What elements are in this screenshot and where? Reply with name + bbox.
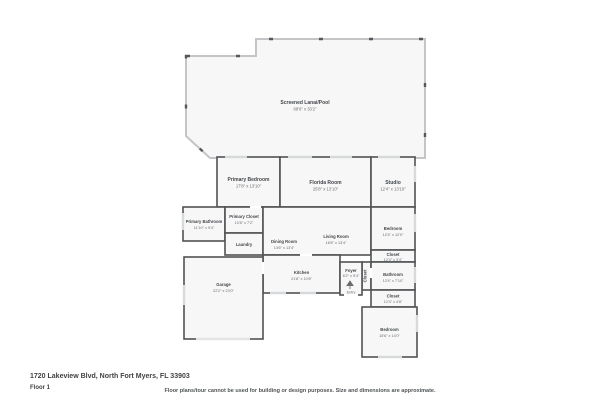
room-closet-b: Closet 12'4" x 4'8"	[371, 290, 415, 307]
room-label: Primary Bathroom	[186, 219, 223, 224]
floor-plan-svg: Screened Lanai/Pool 68'6" x 33'2" Primar…	[0, 0, 600, 400]
room-florida-room: Florida Room 25'8" x 13'10"	[280, 157, 371, 207]
room-label: Primary Bedroom	[228, 177, 271, 183]
room-bedroom-2: Bedroom 15'6" x 14'0"	[362, 307, 417, 357]
room-dims: 10'8" x 7'2"	[235, 221, 254, 225]
room-dims: 12'4" x 4'8"	[384, 300, 403, 304]
room-label: Kitchen	[294, 270, 310, 275]
room-primary-bathroom: Primary Bathroom 11'10" x 9'4"	[183, 207, 225, 241]
room-label: Foyer	[345, 268, 357, 273]
room-label: Closet	[363, 269, 368, 282]
room-laundry: Laundry	[225, 233, 263, 255]
room-dims: 6'2" x 9'4"	[343, 274, 360, 278]
room-dining-living: Dining Room 13'6" x 13'4" Living Room 16…	[263, 207, 371, 255]
room-bathroom: Bathroom 12'4" x 7'10"	[371, 262, 415, 290]
room-dims: 16'8" x 13'4"	[326, 241, 347, 245]
room-kitchen: Kitchen 21'8" x 10'8"	[263, 255, 340, 293]
room-dims: 21'8" x 10'8"	[291, 277, 312, 281]
room-label: Screened Lanai/Pool	[280, 100, 330, 106]
room-label: Primary Closet	[229, 214, 259, 219]
room-screened-lanai: Screened Lanai/Pool 68'6" x 33'2"	[186, 39, 425, 158]
room-primary-closet: Primary Closet 10'8" x 7'2"	[225, 207, 263, 233]
room-label: Garage	[216, 282, 231, 287]
room-dims: 17'8" x 13'10"	[236, 184, 262, 189]
room-label: Living Room	[323, 234, 349, 239]
room-label: Laundry	[236, 242, 253, 247]
room-dims: 25'8" x 13'10"	[313, 187, 339, 192]
lanai-outline	[186, 39, 425, 158]
room-dims: 13'6" x 13'4"	[274, 246, 295, 250]
room-label: Dining Room	[271, 239, 297, 244]
room-dims: 68'6" x 33'2"	[294, 107, 317, 112]
room-label: Closet	[387, 252, 400, 257]
room-label: Bedroom	[384, 226, 403, 231]
room-dims: 12'4" x 13'10"	[380, 187, 406, 192]
room-label: Bathroom	[383, 272, 403, 277]
room-closet-a: Closet 12'4" x 3'4"	[371, 250, 415, 262]
room-primary-bedroom: Primary Bedroom 17'8" x 13'10"	[217, 157, 280, 207]
room-dims: 15'6" x 14'0"	[379, 334, 400, 338]
room-bedroom-1: Bedroom 12'4" x 12'0"	[371, 207, 415, 250]
room-label: Bedroom	[380, 327, 399, 332]
room-label: Closet	[387, 294, 400, 299]
room-garage: Garage 22'2" x 23'0"	[184, 257, 263, 339]
room-foyer: Foyer 6'2" x 9'4" Entry	[340, 262, 362, 295]
floor-plan-canvas: Screened Lanai/Pool 68'6" x 33'2" Primar…	[0, 0, 600, 400]
room-dims: 12'4" x 7'10"	[383, 279, 404, 283]
room-studio: Studio 12'4" x 13'10"	[371, 157, 415, 207]
room-label: Studio	[385, 180, 401, 186]
room-label: Florida Room	[309, 180, 342, 186]
room-dims: 11'10" x 9'4"	[194, 226, 215, 230]
room-dims: 22'2" x 23'0"	[213, 289, 234, 293]
property-address: 1720 Lakeview Blvd, North Fort Myers, FL…	[30, 373, 190, 380]
room-closet-strip: Closet	[362, 262, 371, 290]
room-dims: 12'4" x 12'0"	[383, 233, 404, 237]
disclaimer-text: Floor plans/tour cannot be used for buil…	[0, 388, 600, 394]
